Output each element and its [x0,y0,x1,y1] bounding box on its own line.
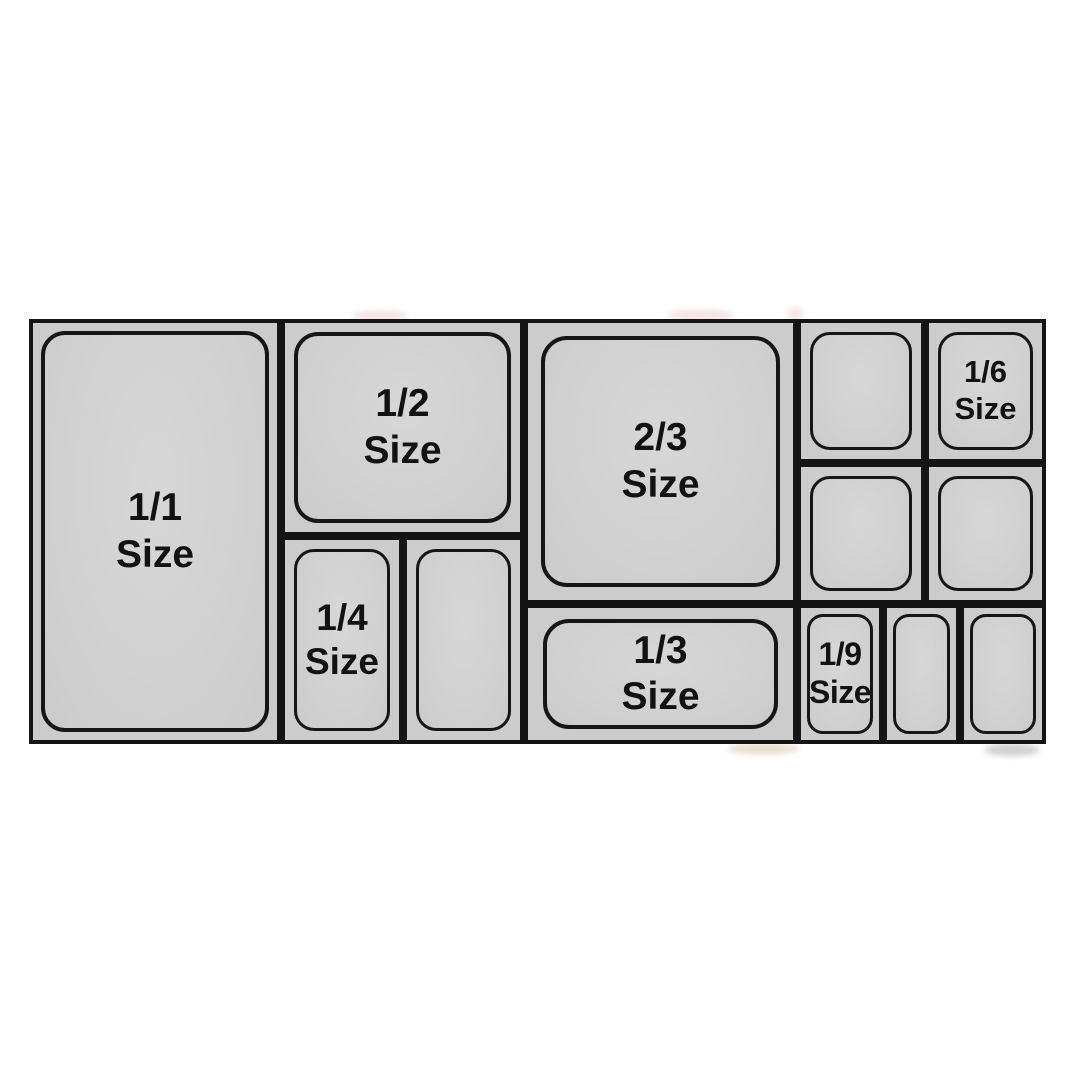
fraction-text: 1/9 [809,636,871,674]
pan-2-3-label: 2/3 Size [621,415,699,507]
fraction-text: 1/4 [305,596,379,640]
size-word-text: Size [363,428,441,474]
section-1-3-size: 1/3 Size [524,604,797,744]
section-2-3-size: 2/3 Size [524,319,797,604]
section-1-1-size: 1/1 Size [29,319,281,744]
fraction-text: 1/6 [954,354,1016,391]
size-word-text: Size [116,532,194,578]
pan-1-2-label: 1/2 Size [363,381,441,473]
section-1-6-unlabeled-bottom-right [925,463,1046,604]
fraction-text: 1/3 [621,628,699,674]
pan-1-9-label: 1/9 Size [809,636,871,712]
pan-1-9-unlabeled [970,614,1036,734]
pan-1-1-label: 1/1 Size [116,485,194,577]
pan-1-6-unlabeled [810,476,912,591]
size-word-text: Size [954,391,1016,428]
pan-1-1: 1/1 Size [41,331,269,732]
section-1-6-size: 1/6 Size [925,319,1046,463]
section-1-4-unlabeled [403,536,524,744]
fraction-text: 1/2 [363,381,441,427]
photo-artifact-shadow [984,744,1040,756]
section-1-9-unlabeled-right [960,604,1046,744]
pan-1-9: 1/9 Size [807,614,873,734]
pan-1-6-unlabeled [938,476,1033,591]
size-word-text: Size [809,674,871,712]
size-word-text: Size [621,462,699,508]
pan-1-3-label: 1/3 Size [621,628,699,720]
pan-1-4-unlabeled [416,549,511,731]
section-1-4-size: 1/4 Size [281,536,403,744]
pan-1-9-unlabeled [893,614,950,734]
size-word-text: Size [621,674,699,720]
pan-1-2: 1/2 Size [294,332,511,523]
pan-1-4: 1/4 Size [294,549,390,731]
pan-1-4-label: 1/4 Size [305,596,379,683]
pan-1-6-label: 1/6 Size [954,354,1016,427]
section-1-9-unlabeled-middle [883,604,960,744]
fraction-text: 1/1 [116,485,194,531]
photo-artifact-smudge [727,744,799,754]
pan-1-3: 1/3 Size [543,619,778,729]
fraction-text: 2/3 [621,415,699,461]
pan-2-3: 2/3 Size [541,336,780,587]
section-1-6-unlabeled-bottom-left [797,463,925,604]
gastronorm-pan-size-diagram: 1/1 Size 1/2 Size 1/4 Size 2/3 Size [0,0,1080,1080]
pan-1-6-unlabeled [810,332,912,450]
section-1-2-size: 1/2 Size [281,319,524,536]
section-1-6-unlabeled-top-left [797,319,925,463]
section-1-9-size: 1/9 Size [797,604,883,744]
pan-1-6: 1/6 Size [938,332,1033,450]
size-word-text: Size [305,640,379,684]
